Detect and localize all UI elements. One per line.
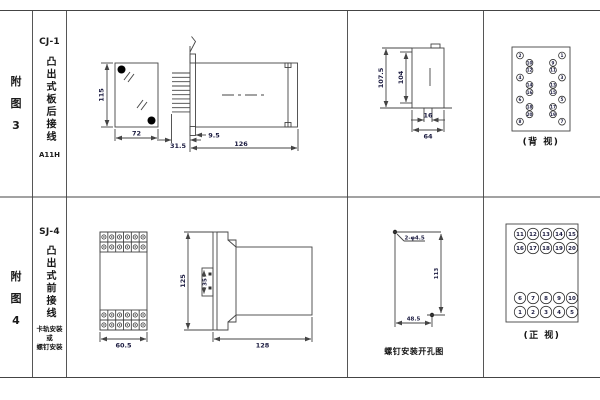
svg-text:1: 1	[518, 310, 522, 316]
table-grid	[0, 11, 600, 378]
sj4-mount-note: 螺钉安装	[37, 343, 63, 352]
svg-text:9: 9	[557, 296, 561, 302]
sj4-terminal-grid	[100, 232, 147, 330]
cj1-panel-cutout: 107.5 104 16 64	[377, 44, 452, 141]
svg-text:11: 11	[550, 68, 556, 73]
dim-sj4-height: 125	[179, 274, 187, 288]
dim-hole-spacing-v: 113	[434, 268, 440, 280]
svg-text:16: 16	[516, 246, 524, 252]
svg-text:13: 13	[550, 82, 556, 87]
sj4-mount-note: 卡轨安装	[37, 325, 63, 334]
sj4-front-view: 60.5	[100, 232, 147, 350]
figure-4-char: 图	[11, 293, 22, 304]
figure-4-label: 附 图 4	[0, 197, 32, 378]
dim-pin-depth: 31.5	[170, 142, 187, 150]
cj1-code: A11H	[39, 151, 60, 159]
svg-text:9: 9	[552, 60, 555, 65]
technical-drawing-layer: 115 72 9.5 31.5 126	[0, 0, 600, 400]
sj4-model: SJ-4	[39, 227, 60, 237]
dim-hole-label: 2-φ4.5	[405, 236, 425, 242]
cj1-side-view: 9.5 31.5 126	[159, 37, 298, 153]
svg-text:15: 15	[550, 90, 556, 95]
dim-body-length: 126	[234, 140, 248, 148]
cj1-description-cell: CJ-1 凸出式板后接线 A11H	[33, 10, 66, 197]
cj1-model: CJ-1	[39, 37, 60, 47]
svg-text:3: 3	[561, 75, 564, 80]
svg-text:20: 20	[568, 246, 576, 252]
svg-text:4: 4	[519, 75, 522, 80]
svg-text:2: 2	[519, 53, 522, 58]
dim-flange: 9.5	[208, 132, 220, 140]
datasheet-page: 115 72 9.5 31.5 126	[0, 0, 600, 400]
dim-cutout-width: 64	[423, 133, 433, 141]
sj4-mount-note: 或	[37, 334, 63, 343]
svg-text:7: 7	[561, 119, 564, 124]
svg-text:14: 14	[527, 82, 533, 87]
back-view-caption: (背 视)	[523, 136, 560, 148]
figure-3-char: 图	[11, 98, 22, 109]
svg-text:2: 2	[531, 310, 535, 316]
svg-text:5: 5	[561, 97, 564, 102]
svg-text:19: 19	[555, 246, 563, 252]
svg-text:17: 17	[550, 104, 556, 109]
sj4-description-cell: SJ-4 凸出式前接线 卡轨安装 或 螺钉安装	[33, 197, 66, 378]
svg-text:18: 18	[542, 246, 550, 252]
sj4-mount-type: 凸出式前接线	[42, 245, 57, 320]
sj4-side-view: 125 35 128	[179, 232, 312, 350]
cj1-mount-type: 凸出式板后接线	[42, 56, 57, 144]
svg-text:6: 6	[519, 97, 522, 102]
dim-cutout-height: 104	[397, 70, 405, 84]
svg-text:20: 20	[527, 112, 533, 117]
sj4-front-socket-pins: 1112131415161718192067891012345	[514, 228, 577, 317]
svg-text:16: 16	[527, 90, 533, 95]
svg-text:4: 4	[557, 310, 561, 316]
dim-slot-width: 16	[423, 112, 433, 120]
svg-text:10: 10	[568, 296, 576, 302]
hole-diagram-caption: 螺钉安装开孔图	[384, 346, 444, 356]
svg-text:19: 19	[550, 112, 556, 117]
sj4-mount-notes: 卡轨安装 或 螺钉安装	[37, 325, 63, 352]
cj1-front-view: 115 72	[98, 63, 159, 141]
cj1-back-view-pins: 2468101214161820911131517191357	[517, 52, 566, 125]
cj1-pin-comb	[172, 73, 190, 112]
svg-text:12: 12	[527, 68, 533, 73]
svg-text:13: 13	[542, 232, 550, 238]
svg-text:5: 5	[570, 310, 574, 316]
cj1-back-view: 2468101214161820911131517191357 (背 视)	[512, 47, 570, 148]
figure-3-label: 附 图 3	[0, 10, 32, 197]
dim-sj4-front-width: 60.5	[115, 342, 132, 350]
svg-text:18: 18	[527, 104, 533, 109]
sj4-hole-diagram: 2-φ4.5 113 48.5 螺钉安装开孔图	[384, 230, 445, 356]
dim-front-width: 72	[132, 130, 141, 138]
sj4-front-socket: 1112131415161718192067891012345 (正 视)	[506, 224, 578, 341]
svg-text:10: 10	[527, 60, 533, 65]
figure-3-char: 附	[11, 76, 22, 87]
figure-4-char: 4	[12, 315, 20, 326]
svg-text:1: 1	[561, 53, 564, 58]
svg-text:15: 15	[568, 232, 576, 238]
dim-rail-width: 35	[203, 278, 209, 286]
figure-3-char: 3	[12, 120, 20, 131]
svg-text:17: 17	[529, 246, 537, 252]
svg-text:7: 7	[531, 296, 535, 302]
dim-front-height: 115	[98, 88, 106, 102]
dim-cutout-total-height: 107.5	[377, 67, 385, 88]
svg-text:8: 8	[519, 119, 522, 124]
dim-sj4-body-length: 128	[256, 342, 270, 350]
front-view-caption: (正 视)	[524, 329, 561, 341]
svg-text:6: 6	[518, 296, 522, 302]
figure-4-char: 附	[11, 271, 22, 282]
svg-text:14: 14	[555, 232, 563, 238]
dim-hole-spacing-h: 48.5	[407, 317, 421, 323]
svg-text:8: 8	[544, 296, 548, 302]
svg-text:3: 3	[544, 310, 548, 316]
svg-text:11: 11	[516, 232, 524, 238]
svg-text:12: 12	[529, 232, 537, 238]
